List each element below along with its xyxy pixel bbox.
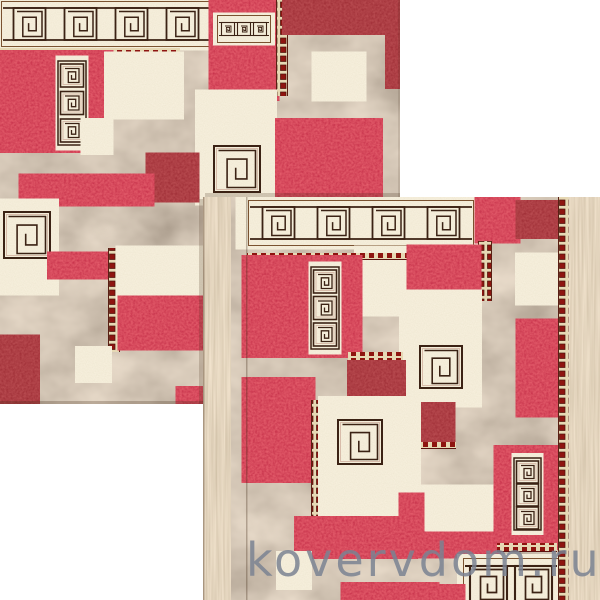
carpet-block-cream bbox=[420, 487, 497, 533]
carpet-block-maroon bbox=[0, 338, 38, 404]
carpet-front-shadow-top bbox=[205, 193, 400, 197]
dentil-border bbox=[497, 543, 557, 552]
carpet-block-red bbox=[247, 260, 357, 353]
carpet-block-red bbox=[400, 585, 462, 600]
bead-border bbox=[478, 241, 492, 301]
carpet-block-maroon bbox=[148, 155, 197, 200]
carpet-block-red bbox=[518, 323, 560, 413]
carpet-front-shadow-left bbox=[199, 199, 203, 404]
carpet-block-maroon bbox=[288, 0, 400, 33]
carpet-block-red bbox=[122, 298, 203, 348]
dentil-border bbox=[247, 253, 410, 260]
dentil-border bbox=[0, 48, 180, 55]
carpet-block-cream bbox=[517, 255, 557, 303]
carpet-block-fringe bbox=[570, 197, 600, 600]
bead-border bbox=[558, 197, 570, 600]
carpet-block-red bbox=[245, 382, 312, 478]
carpet-block-red bbox=[477, 199, 518, 241]
dentil-border bbox=[348, 352, 403, 362]
bead-border bbox=[108, 248, 120, 352]
carpet-block-red bbox=[400, 495, 423, 543]
carpet-block-cream bbox=[82, 120, 112, 153]
carpet-block-cream bbox=[278, 553, 310, 588]
carpet-block-red bbox=[410, 247, 478, 295]
carpet-block-maroon bbox=[350, 362, 403, 402]
bead-border bbox=[276, 0, 288, 96]
carpet-block-red bbox=[420, 533, 497, 557]
carpet-block-red bbox=[300, 518, 412, 557]
carpet-block-red bbox=[280, 122, 378, 200]
carpet-collage-canvas bbox=[0, 0, 600, 600]
carpet-block-red bbox=[50, 253, 107, 278]
carpet-block-fringe bbox=[203, 197, 237, 600]
carpet-block-cream bbox=[199, 95, 273, 200]
carpet-product-photo: kovervdom.ru bbox=[0, 0, 600, 600]
carpet-block-cream bbox=[462, 557, 560, 600]
carpet-block-cream bbox=[314, 54, 364, 99]
carpet-block-red bbox=[25, 175, 148, 205]
carpet-block-maroon bbox=[518, 202, 560, 237]
carpet-block-cream bbox=[120, 248, 203, 298]
carpet-block-cream bbox=[108, 55, 180, 116]
carpet-block-cream bbox=[77, 348, 110, 381]
carpet-front bbox=[203, 197, 600, 600]
carpet-block-maroon bbox=[386, 28, 400, 86]
